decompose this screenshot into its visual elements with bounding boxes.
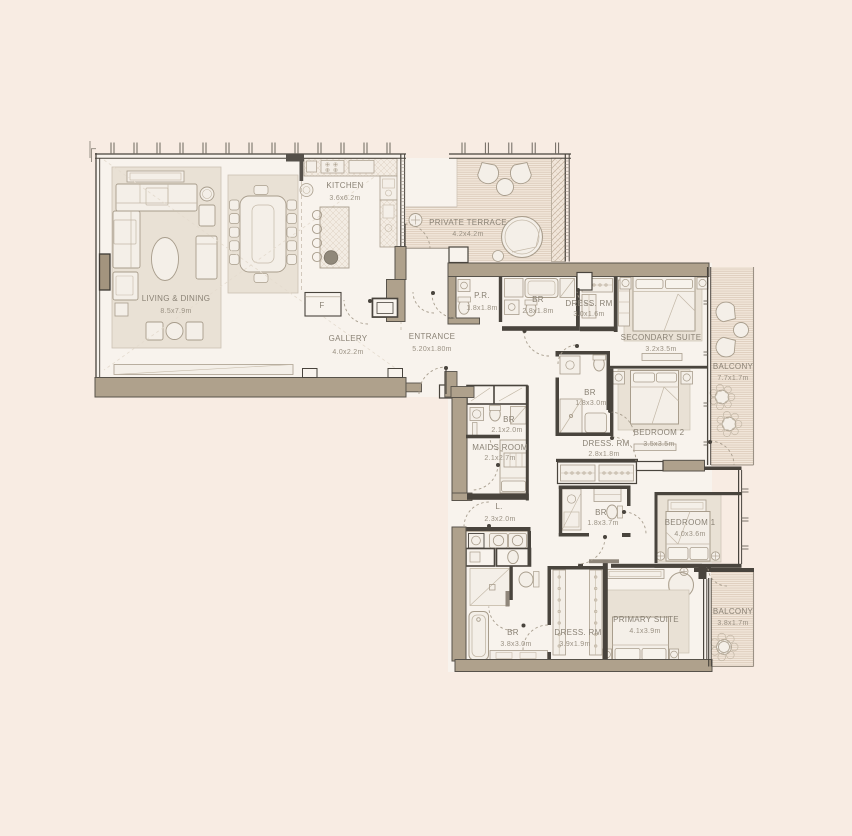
svg-text:3.0x1.6m: 3.0x1.6m [573, 311, 604, 318]
svg-text:1.8x1.8m: 1.8x1.8m [466, 305, 497, 312]
svg-text:4.2x4.2m: 4.2x4.2m [452, 231, 483, 238]
svg-text:LIVING & DINING: LIVING & DINING [142, 294, 211, 303]
svg-text:4.0x2.2m: 4.0x2.2m [332, 349, 363, 356]
svg-text:DRESS. RM: DRESS. RM [554, 628, 601, 637]
svg-text:2.1x2.0m: 2.1x2.0m [491, 427, 522, 434]
svg-text:BR: BR [532, 295, 544, 304]
svg-text:BR: BR [507, 628, 519, 637]
svg-text:BEDROOM 1: BEDROOM 1 [665, 518, 716, 527]
svg-text:2.8x1.8m: 2.8x1.8m [588, 451, 619, 458]
svg-text:2.8x1.8m: 2.8x1.8m [522, 308, 553, 315]
svg-text:F: F [319, 301, 324, 310]
svg-text:SECONDARY SUITE: SECONDARY SUITE [621, 333, 702, 342]
svg-text:MAIDS ROOM: MAIDS ROOM [472, 443, 527, 452]
svg-text:3.9x1.9m: 3.9x1.9m [559, 641, 590, 648]
svg-text:BR: BR [584, 388, 596, 397]
svg-text:BALCONY: BALCONY [713, 362, 754, 371]
svg-text:1.8x3.0m: 1.8x3.0m [575, 400, 606, 407]
svg-text:P.R.: P.R. [474, 291, 490, 300]
svg-text:5.20x1.80m: 5.20x1.80m [412, 346, 452, 353]
svg-text:3.8x3.0m: 3.8x3.0m [500, 641, 531, 648]
svg-text:2.3x2.0m: 2.3x2.0m [484, 516, 515, 523]
svg-text:KITCHEN: KITCHEN [326, 181, 363, 190]
svg-text:BR: BR [595, 508, 607, 517]
svg-text:4.1x3.9m: 4.1x3.9m [629, 628, 660, 635]
svg-text:PRIMARY SUITE: PRIMARY SUITE [613, 615, 679, 624]
svg-text:3.2x3.5m: 3.2x3.5m [645, 346, 676, 353]
svg-text:ENTRANCE: ENTRANCE [409, 332, 455, 341]
svg-text:3.8x1.7m: 3.8x1.7m [717, 620, 748, 627]
svg-text:DRESS. RM: DRESS. RM [565, 299, 612, 308]
svg-text:1.8x3.7m: 1.8x3.7m [587, 520, 618, 527]
svg-text:DRESS. RM: DRESS. RM [582, 439, 629, 448]
svg-text:BEDROOM 2: BEDROOM 2 [634, 428, 685, 437]
svg-text:BALCONY: BALCONY [713, 607, 754, 616]
svg-text:8.5x7.9m: 8.5x7.9m [160, 308, 191, 315]
svg-text:L.: L. [495, 502, 502, 511]
svg-text:2.1x2.7m: 2.1x2.7m [484, 455, 515, 462]
svg-text:GALLERY: GALLERY [329, 334, 368, 343]
svg-text:3.6x6.2m: 3.6x6.2m [329, 195, 360, 202]
svg-text:PRIVATE TERRACE: PRIVATE TERRACE [429, 218, 507, 227]
svg-text:7.7x1.7m: 7.7x1.7m [717, 375, 748, 382]
svg-text:BR: BR [503, 415, 515, 424]
svg-text:4.0x3.6m: 4.0x3.6m [674, 531, 705, 538]
svg-text:3.5x3.5m: 3.5x3.5m [643, 441, 674, 448]
